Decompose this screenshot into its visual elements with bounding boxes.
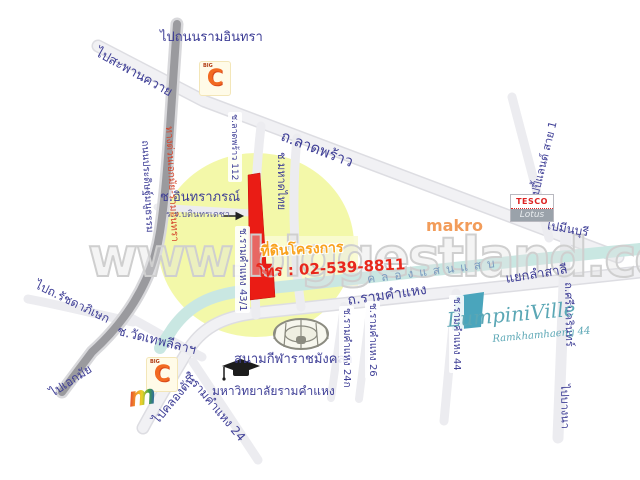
label-makro: makro bbox=[426, 216, 483, 235]
label-rajamangala-stadium: สนามกีฬาราชมังคลา bbox=[234, 348, 353, 369]
label-to-bang-na: ไปบางนา bbox=[556, 384, 575, 429]
label-soi-ramkhamhaeng-43-1: ช.รามคำแหง 43/1 bbox=[235, 226, 250, 313]
big-c-small-text: BIG bbox=[150, 359, 160, 365]
label-soi-intharaporn: ช.อินทราภรณ์ bbox=[160, 186, 240, 207]
label-soi-lat-phrao-112: ช.ลาดพร้าว 112 bbox=[228, 112, 242, 182]
tesco-lotus-logo: TESCO Lotus bbox=[510, 194, 554, 222]
label-bodindecha-school: ร.ร.บดินทรเดชา bbox=[166, 207, 230, 221]
the-mall-logo: m bbox=[126, 379, 158, 414]
label-soi-ramkhamhaeng-26: ช.รามคำแหง 26 bbox=[365, 301, 380, 379]
big-c-letter: C bbox=[154, 364, 170, 386]
label-soi-ramkhamhaeng-24k: ช.รามคำแหง 24ก bbox=[339, 306, 354, 390]
tesco-text: TESCO bbox=[511, 195, 553, 209]
location-map: www.biggestland.com ไปถนนรามอินทรา ไปสะพ… bbox=[0, 0, 640, 480]
lotus-text: Lotus bbox=[511, 209, 553, 222]
big-c-small-text: BIG bbox=[203, 63, 213, 69]
label-to-ram-inthra: ไปถนนรามอินทรา bbox=[160, 26, 263, 47]
big-c-letter: C bbox=[207, 68, 223, 90]
label-ramkhamhaeng-university: มหาวิทยาลัยรามคำแหง bbox=[212, 382, 335, 401]
stadium-icon bbox=[274, 319, 328, 349]
label-soi-mahat-thai: ช.มหาดไทย bbox=[273, 152, 291, 210]
big-c-logo-north: BIG C bbox=[199, 61, 231, 96]
